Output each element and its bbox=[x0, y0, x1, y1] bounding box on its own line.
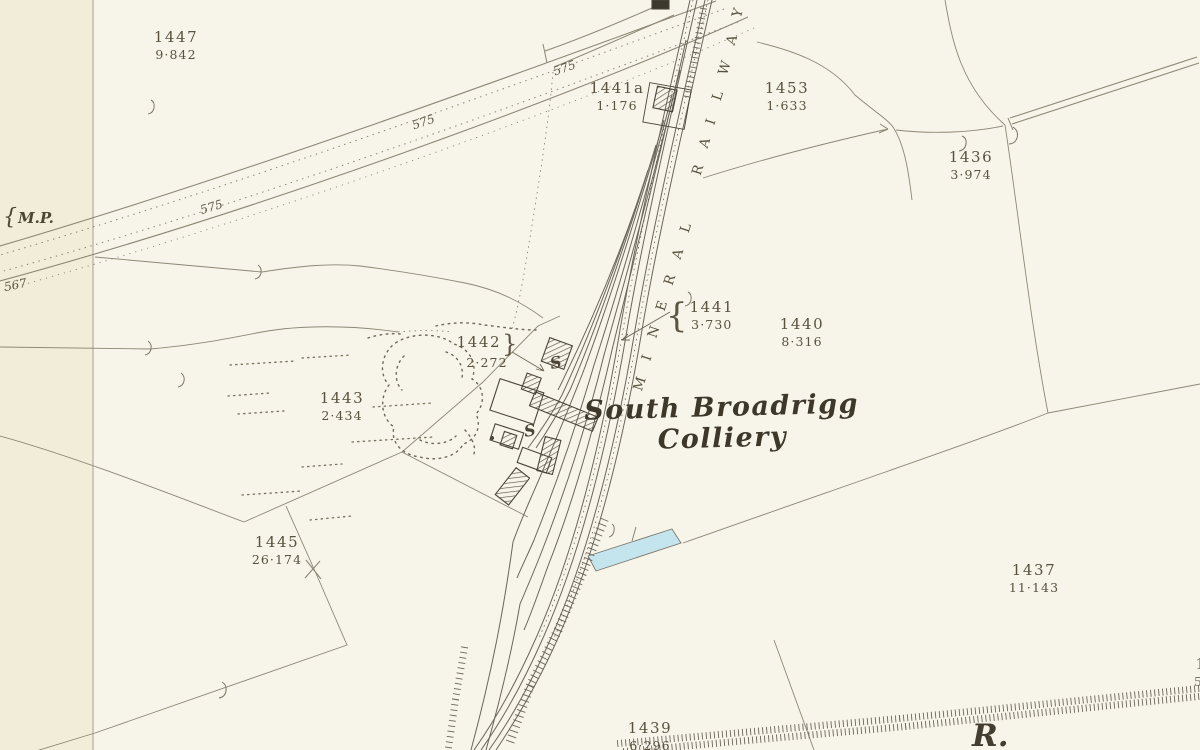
parcel-acreage: 1·633 bbox=[765, 99, 810, 112]
parcel-label-1439: 14396·296 bbox=[628, 721, 673, 750]
parcel-number: 1441a bbox=[589, 81, 644, 96]
parcel-label-1443: 14432·434 bbox=[320, 391, 365, 422]
parcel-number: 1442 bbox=[457, 335, 502, 350]
parcel-acreage: 8·316 bbox=[780, 335, 825, 348]
parcel-acreage: 2·434 bbox=[320, 409, 365, 422]
parcel-acreage: 11·143 bbox=[1009, 581, 1059, 594]
parcel-label-1441: {14413·730 bbox=[666, 300, 734, 331]
vegetation-rows bbox=[228, 355, 434, 520]
parcel-number: 1437 bbox=[1009, 563, 1059, 578]
brace-glyph: } bbox=[502, 335, 517, 353]
s-mark-label: S bbox=[523, 420, 537, 440]
colliery-name-label: South BroadriggColliery bbox=[584, 388, 860, 457]
parcel-label-1436: 14363·974 bbox=[949, 150, 994, 181]
parcel-number: 1453 bbox=[765, 81, 810, 96]
parcel-number: 1440 bbox=[780, 317, 825, 332]
mineral-railway-tracks bbox=[471, 0, 712, 750]
parcel-acreage: 26·174 bbox=[252, 553, 302, 566]
road bbox=[0, 1, 754, 291]
parcel-acreage: 1·176 bbox=[589, 99, 644, 112]
parcel-number: 1441 bbox=[690, 300, 735, 315]
parcel-label-1453: 14531·633 bbox=[765, 81, 810, 112]
parcel-acreage: 6·296 bbox=[628, 739, 673, 750]
parcel-number: 1436 bbox=[949, 150, 994, 165]
parcel-label-1437: 143711·143 bbox=[1009, 563, 1059, 594]
river-label: R. bbox=[972, 718, 1009, 750]
fence-hooks bbox=[145, 100, 1018, 698]
os-map-canvas[interactable]: 14479·8421441a1·17614531·63314363·974144… bbox=[0, 0, 1200, 750]
parcel-label-1441a: 1441a1·176 bbox=[589, 81, 644, 112]
parcel-label-1442: 1442}2·272 bbox=[457, 335, 518, 369]
parcel-acreage: 9·842 bbox=[154, 48, 199, 61]
parcel-label-1440: 14408·316 bbox=[780, 317, 825, 348]
mile-post-text: M.P. bbox=[18, 209, 54, 227]
parcel-label-1: 15· bbox=[1194, 657, 1200, 688]
brace-glyph: { bbox=[3, 205, 17, 230]
water-feature bbox=[588, 527, 681, 571]
parcel-label-1447: 14479·842 bbox=[154, 30, 199, 61]
parcel-label-1445: 144526·174 bbox=[252, 535, 302, 566]
parcel-acreage: 3·730 bbox=[690, 318, 735, 331]
parcel-number: 1443 bbox=[320, 391, 365, 406]
mile-post-label: {M.P. bbox=[3, 205, 54, 230]
parcel-number: 1 bbox=[1194, 657, 1200, 672]
parcel-acreage: 5· bbox=[1194, 675, 1200, 688]
parcel-number: 1445 bbox=[252, 535, 302, 550]
parcel-acreage: 3·974 bbox=[949, 168, 994, 181]
parcel-number: 1447 bbox=[154, 30, 199, 45]
parcel-number: 1439 bbox=[628, 721, 673, 736]
